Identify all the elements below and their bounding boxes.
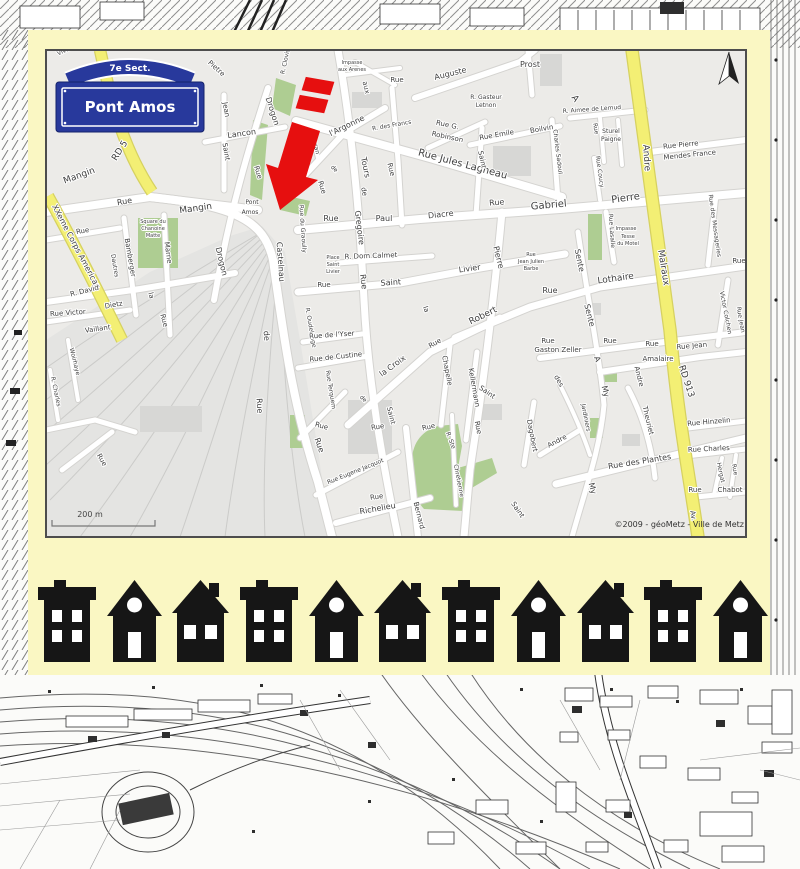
house-icon-gable: [107, 580, 162, 662]
page: 200 m ©2009 - géoMetz - Ville de Metz Vi…: [0, 0, 800, 869]
house-icon-gable: [511, 580, 566, 662]
house-icon-flat: [240, 580, 298, 662]
house-icon-gable: [309, 580, 364, 662]
street-sign: 7e Sect. Pont Amos: [54, 50, 206, 136]
house-icon-chimney: [172, 580, 229, 662]
house-icon-chimney: [374, 580, 431, 662]
houses-row: [38, 578, 768, 662]
house-icon-chimney: [577, 580, 634, 662]
sign-plaque: Pont Amos: [56, 82, 204, 132]
house-icon-flat: [38, 580, 96, 662]
sign-street-name: Pont Amos: [85, 98, 176, 116]
house-icon-flat: [644, 580, 702, 662]
house-icon-flat: [442, 580, 500, 662]
sign-sector-label: 7e Sect.: [109, 64, 150, 74]
sign-arc: 7e Sect.: [68, 64, 192, 80]
house-icon-gable: [713, 580, 768, 662]
